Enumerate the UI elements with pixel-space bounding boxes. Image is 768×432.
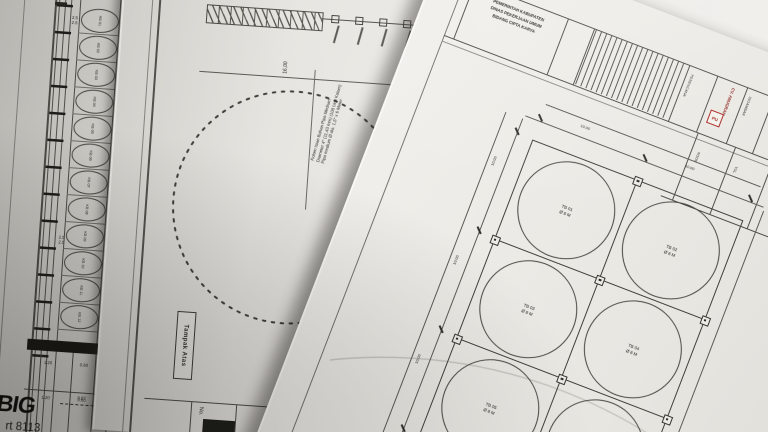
- truss-post: [381, 29, 387, 47]
- tank-label: KB 04: [92, 96, 97, 107]
- company-name-text: CV. ANUGRAH: [721, 87, 736, 116]
- tank-label: KB 09: [83, 231, 88, 242]
- photo-of-technical-drawings: 2.52.5 2.52.5 BIG rt 8113 KB 01 KB 02 KB…: [0, 0, 768, 432]
- truss-node-square: [355, 17, 364, 26]
- view-label: Tampak Atas: [180, 324, 189, 367]
- dimension-value-left: 10.00: [489, 155, 497, 166]
- tank-label: KB 01: [98, 16, 103, 27]
- big-logo-text: BIG: [0, 389, 37, 420]
- tank-label: KB 05: [90, 123, 95, 134]
- dimension-value-top: 10.00: [580, 123, 591, 131]
- sheet-margin-line: [0, 0, 27, 432]
- tank-label: KB 12: [77, 312, 82, 323]
- dimension-label: 16,00: [282, 61, 289, 74]
- tank-label: KB 06: [88, 150, 93, 161]
- tank-label: KB 11: [79, 285, 84, 295]
- tank-label: KB 08: [84, 204, 89, 215]
- truss-post: [357, 27, 363, 45]
- view-label-box: Tampak Atas: [173, 311, 197, 380]
- tank-label: KB 02: [96, 43, 101, 54]
- title-block-divider: [189, 401, 192, 432]
- dense-text-block: [55, 0, 69, 7]
- tank-label: KB 03: [94, 69, 99, 80]
- dimension-value-top: 10.00: [684, 163, 695, 171]
- logo-block: [202, 419, 235, 432]
- truss-node-square: [331, 15, 340, 24]
- title-band-divider: [752, 97, 768, 153]
- truss-detail: [206, 4, 324, 31]
- dash-line-label: 0.07: [77, 395, 86, 401]
- binding-hatch-strip: [575, 30, 687, 119]
- dimension-pair-label: 2.52.5: [72, 15, 79, 26]
- subrow-divider: [710, 147, 737, 215]
- pu-logo-text: PU: [711, 115, 719, 122]
- sheet-footer-text: rt 8113: [5, 419, 41, 432]
- truss-post: [333, 25, 339, 43]
- tank-label: KB 07: [86, 177, 91, 188]
- truss-node-square: [403, 20, 412, 29]
- agency-header-cell: PEMERINTAH KABUPATEN DINAS PEKERJAAN UMU…: [468, 0, 563, 44]
- table-cell-value: 1.20: [44, 360, 53, 366]
- truss-node-square: [379, 18, 388, 27]
- subrow-cell-label: KODE: [693, 151, 701, 163]
- table-cell-value: 0.60: [80, 362, 89, 368]
- dimension-value-left: 10.00: [452, 254, 460, 265]
- number-cell-label: No.: [197, 407, 204, 416]
- column-marker: [489, 234, 501, 246]
- consultant-cell-label: PERENCANA: [681, 73, 694, 97]
- tank-label: KB 10: [81, 258, 86, 269]
- sheet-margin-line: [122, 0, 156, 431]
- column-marker: [699, 315, 711, 327]
- table-cell-value: 1.20: [41, 395, 50, 401]
- subrow-cell-label: TGL: [731, 165, 738, 174]
